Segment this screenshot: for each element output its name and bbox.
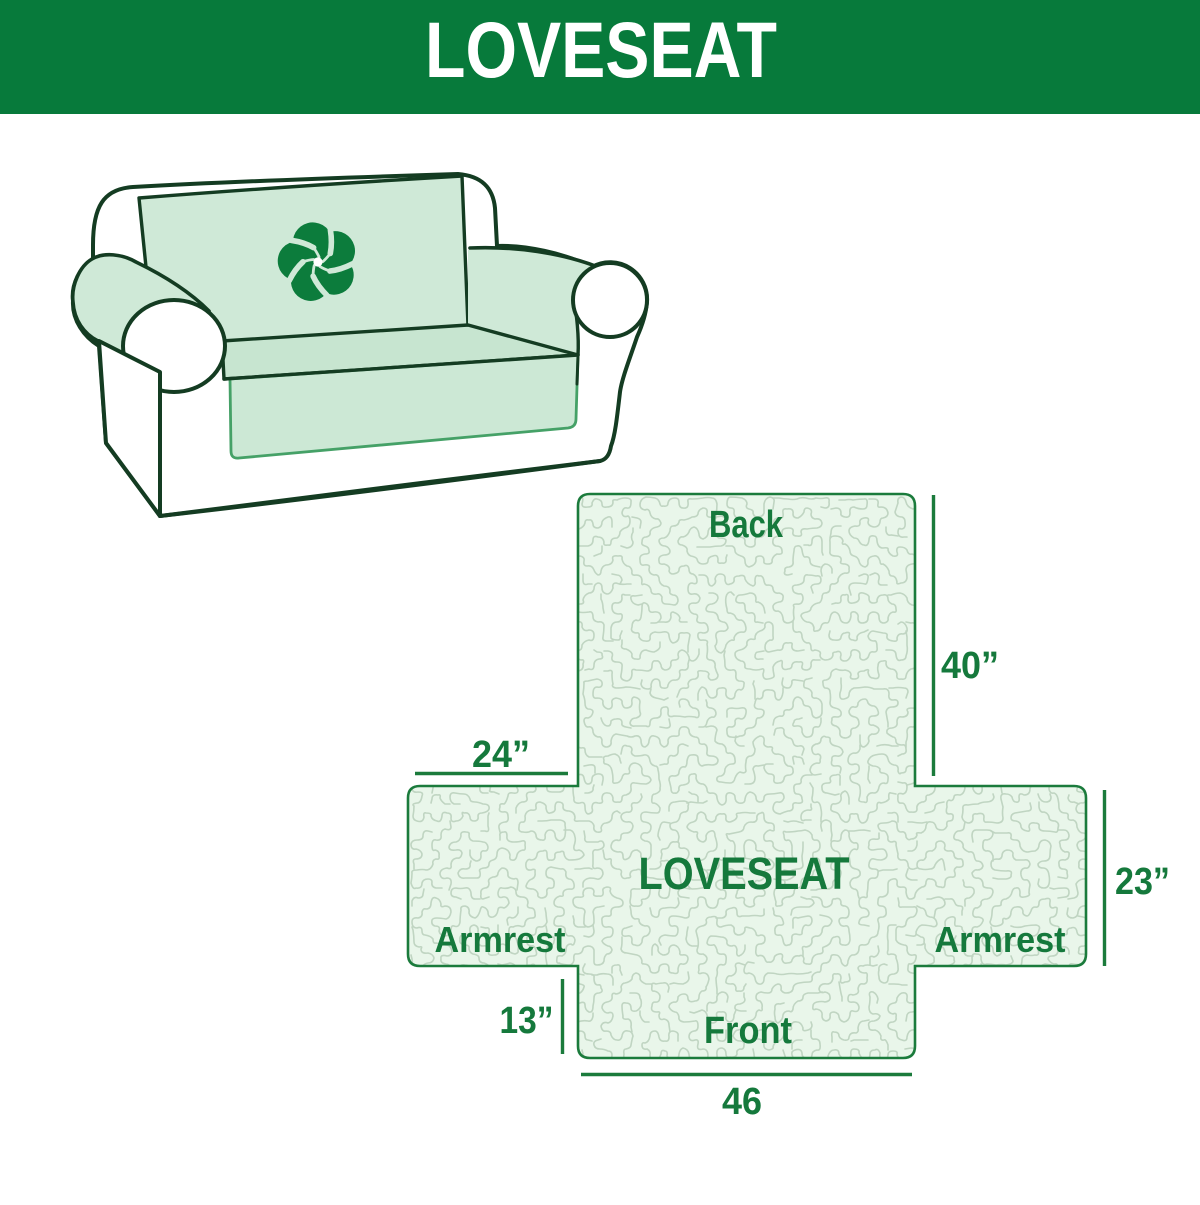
- svg-text:24”: 24”: [472, 734, 530, 776]
- svg-text:23”: 23”: [1115, 861, 1170, 903]
- svg-text:LOVESEAT: LOVESEAT: [425, 5, 777, 94]
- svg-text:46: 46: [722, 1081, 762, 1123]
- svg-text:13”: 13”: [500, 1000, 554, 1042]
- svg-text:Front: Front: [704, 1010, 792, 1052]
- svg-text:Back: Back: [709, 504, 784, 546]
- svg-text:Armrest: Armrest: [435, 919, 566, 960]
- svg-text:Armrest: Armrest: [935, 919, 1066, 960]
- svg-text:LOVESEAT: LOVESEAT: [639, 848, 850, 899]
- svg-text:40”: 40”: [941, 645, 999, 687]
